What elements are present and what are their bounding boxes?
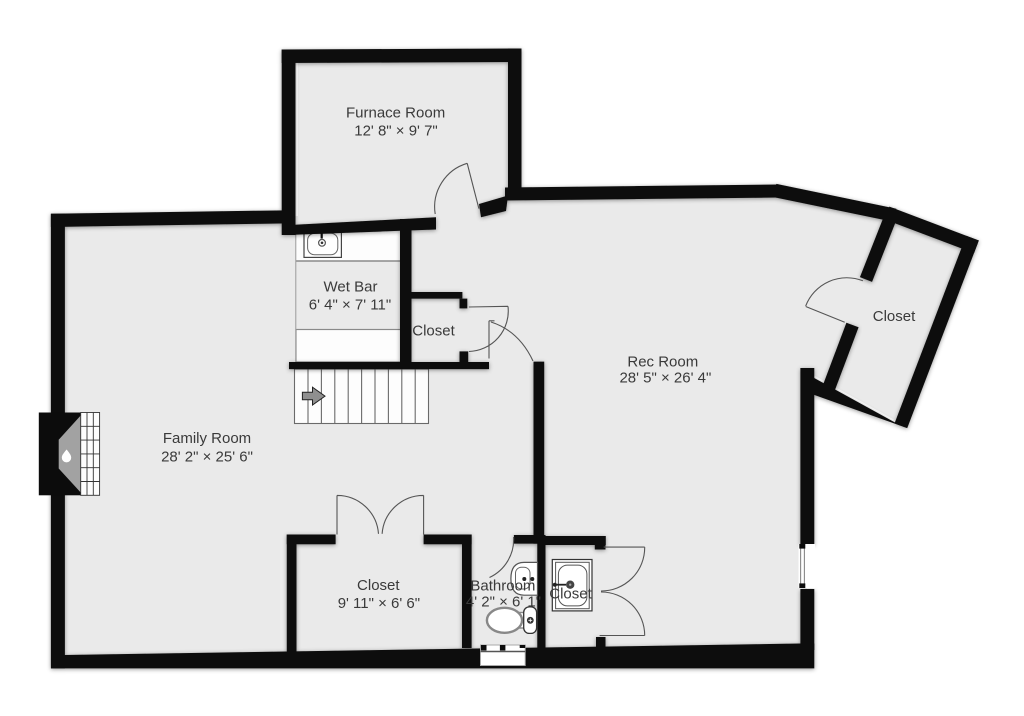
svg-text:Furnace Room: Furnace Room [346, 105, 445, 122]
svg-text:Closet: Closet [412, 322, 455, 339]
svg-text:28' 2" × 25' 6": 28' 2" × 25' 6" [161, 448, 253, 465]
svg-text:28' 5" × 26' 4": 28' 5" × 26' 4" [619, 369, 711, 386]
svg-text:6' 4" × 7' 11": 6' 4" × 7' 11" [309, 296, 391, 313]
svg-text:Closet: Closet [357, 577, 400, 594]
svg-text:9' 11" × 6' 6": 9' 11" × 6' 6" [338, 595, 420, 612]
svg-text:Rec Room: Rec Room [627, 353, 698, 370]
svg-text:Closet: Closet [873, 308, 916, 325]
svg-text:Family Room: Family Room [163, 430, 251, 447]
svg-text:4' 2" × 6' 1": 4' 2" × 6' 1" [466, 593, 541, 610]
svg-text:Bathroom: Bathroom [470, 578, 535, 595]
svg-text:Wet Bar: Wet Bar [324, 278, 378, 295]
svg-text:12' 8" × 9' 7": 12' 8" × 9' 7" [354, 123, 438, 140]
svg-text:Closet: Closet [549, 585, 592, 602]
